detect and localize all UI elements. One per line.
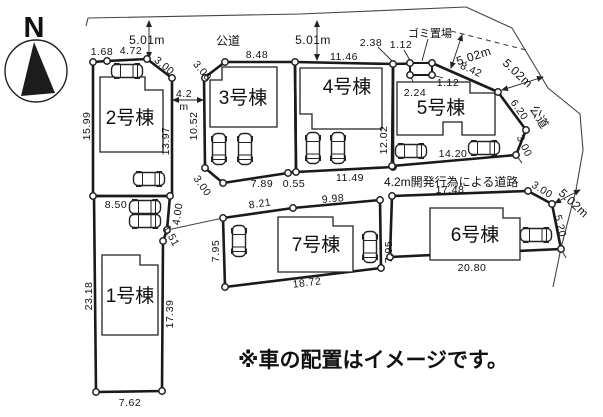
car-icon	[112, 63, 143, 79]
car-icon	[521, 227, 552, 243]
dim-label: 20.80	[458, 262, 487, 274]
dim-label: 0.55	[283, 178, 305, 190]
car-icon	[305, 133, 321, 164]
car-placement-note: ※車の配置はイメージです。	[238, 349, 508, 372]
dim-label: 1.12	[437, 77, 459, 89]
dim-label: 18.72	[292, 275, 322, 290]
leader-garbage	[422, 39, 428, 61]
road-boundary-top	[86, 7, 466, 26]
dim-label: 7.95	[210, 240, 222, 262]
car-icon	[469, 140, 500, 156]
lot-name: 4号棟	[323, 76, 372, 98]
car-icon	[396, 143, 427, 159]
dim-label: 8.50	[105, 199, 127, 211]
site-plan: N	[0, 0, 603, 417]
dim-label: 8.48	[246, 49, 268, 61]
dim-label: 7.95	[383, 241, 395, 263]
dim-label: 3.00	[191, 173, 214, 198]
dim-label: 11.46	[330, 51, 358, 63]
car-icon	[330, 133, 346, 164]
compass-north-label: N	[24, 12, 45, 44]
dim-label: 7.62	[119, 397, 141, 409]
dim-label: 2.24	[404, 87, 426, 99]
dim-label: 17.39	[164, 300, 176, 329]
road-width-label: 5.01m	[295, 33, 331, 47]
dim-label: 7.89	[251, 178, 273, 190]
dim-label: 17.48	[436, 184, 465, 196]
lot-name: 7号棟	[292, 234, 341, 256]
dim-label: 11.49	[336, 172, 364, 184]
car-icon	[211, 134, 227, 165]
lot-name: 5号棟	[417, 97, 466, 119]
dim-label: 4.00	[170, 202, 185, 226]
dim-label: 4.72	[120, 45, 142, 57]
compass-needle-icon	[21, 42, 55, 96]
public-road-top-label: 公道	[216, 34, 240, 48]
lot-name: 1号棟	[106, 285, 155, 307]
dim-label: 9.98	[321, 192, 344, 206]
dim-label: 1.12	[390, 39, 412, 51]
road-width-between-unit: m	[179, 101, 188, 113]
lot-name: 6号棟	[451, 224, 500, 246]
dim-label: 2.38	[360, 37, 382, 49]
garbage-area-label: ゴミ置場	[408, 26, 452, 40]
car-icon	[134, 171, 165, 187]
car-icon	[231, 226, 247, 257]
public-road-right-label: 公道	[527, 103, 552, 131]
dim-label: 12.02	[378, 126, 390, 155]
lot-name: 2号棟	[106, 107, 155, 129]
dim-label: 14.20	[439, 148, 468, 160]
dim-label: 10.52	[188, 112, 200, 141]
dim-label: 1.68	[91, 46, 113, 58]
dim-label: 8.21	[248, 196, 272, 211]
site-plan-drawing: N	[0, 0, 603, 417]
car-icon	[130, 213, 161, 229]
road-width-between-label: 4.2	[176, 88, 192, 100]
compass: N	[5, 12, 67, 102]
lot-name: 3号棟	[219, 87, 268, 109]
dim-label: 15.99	[81, 112, 93, 141]
dim-label: 23.18	[83, 282, 95, 311]
car-icon	[237, 134, 253, 165]
car-icon	[362, 232, 378, 263]
car-icon	[130, 199, 161, 215]
dim-label: 13.97	[160, 127, 172, 156]
dim-label: 5.20	[551, 214, 568, 239]
